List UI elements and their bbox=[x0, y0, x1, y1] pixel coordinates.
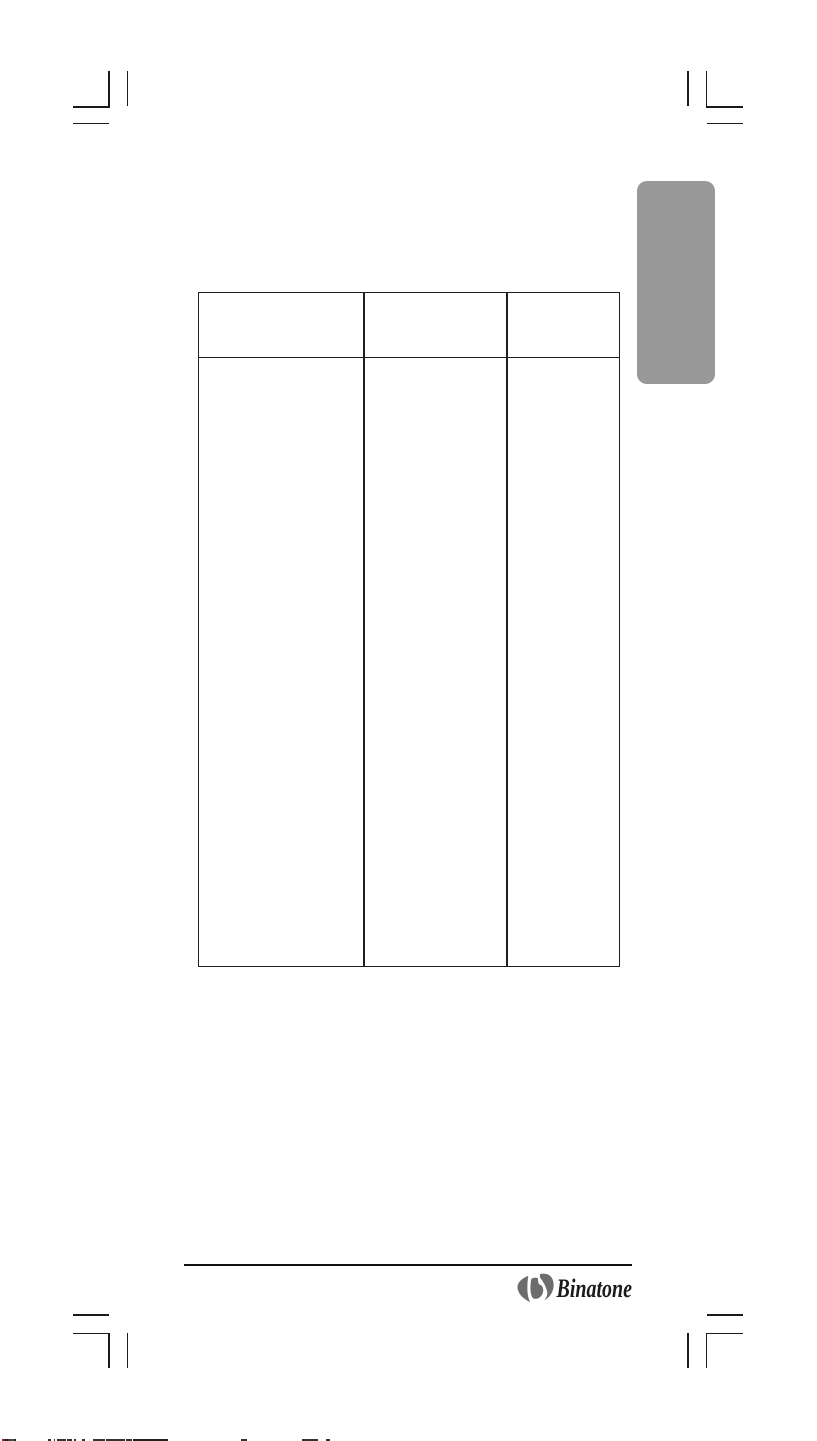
svg-text:Binatone: Binatone bbox=[556, 1274, 632, 1303]
